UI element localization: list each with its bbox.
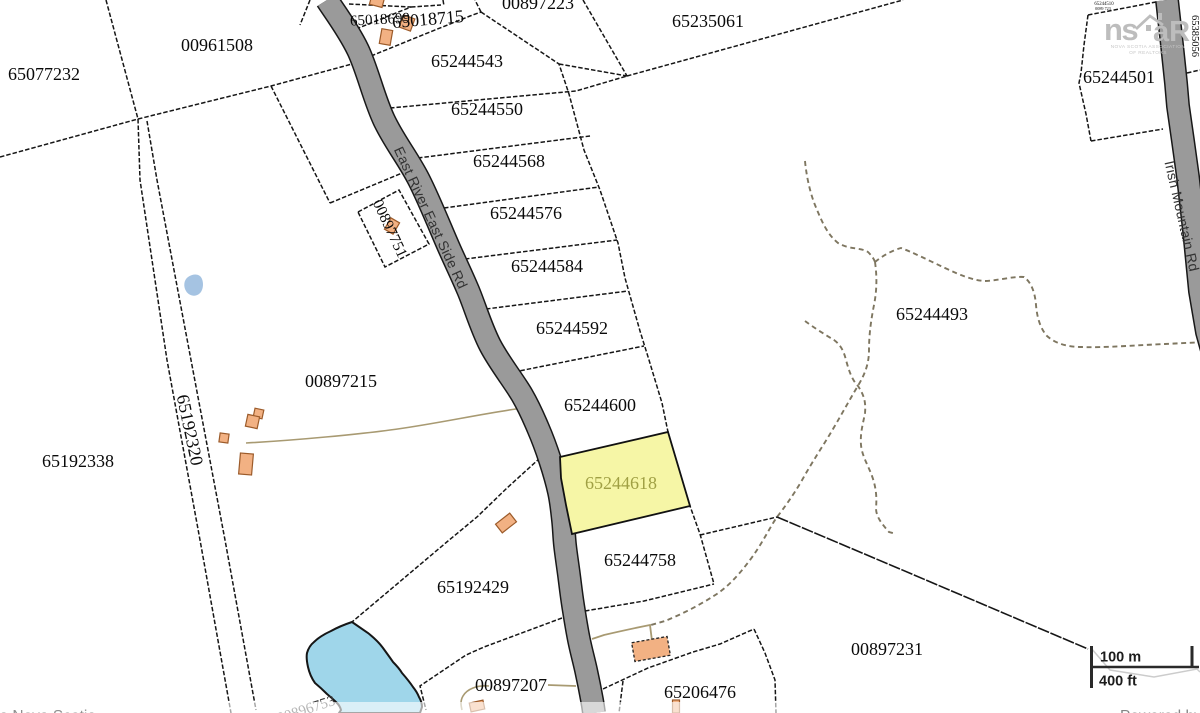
svg-text:Powered by: Powered by <box>1120 708 1200 713</box>
svg-text:00897215: 00897215 <box>305 371 377 391</box>
svg-text:65244584: 65244584 <box>511 256 583 276</box>
svg-text:65192338: 65192338 <box>42 451 114 471</box>
svg-text:NOVA SCOTIA ASSOCIATION: NOVA SCOTIA ASSOCIATION <box>1111 44 1186 50</box>
svg-text:65244543: 65244543 <box>431 51 503 71</box>
svg-text:65385056: 65385056 <box>1189 15 1200 57</box>
svg-text:65244501: 65244501 <box>1083 67 1155 87</box>
svg-text:65244758: 65244758 <box>604 550 676 570</box>
svg-text:100 m: 100 m <box>1100 650 1141 666</box>
svg-text:OF REALTORS: OF REALTORS <box>1129 50 1167 56</box>
svg-text:0089 723: 0089 723 <box>1095 6 1111 11</box>
svg-text:00897223: 00897223 <box>502 0 574 13</box>
svg-text:65244568: 65244568 <box>473 151 545 171</box>
svg-text:65244550: 65244550 <box>451 99 523 119</box>
svg-text:65244618: 65244618 <box>585 473 657 493</box>
svg-text:65077232: 65077232 <box>8 64 80 84</box>
svg-text:00897207: 00897207 <box>475 675 547 695</box>
svg-text:00961508: 00961508 <box>181 35 253 55</box>
svg-text:65206476: 65206476 <box>664 682 736 702</box>
svg-text:65244493: 65244493 <box>896 304 968 324</box>
svg-text:400 ft: 400 ft <box>1099 674 1137 690</box>
svg-text:ia Nova Scotia: ia Nova Scotia <box>0 708 96 713</box>
svg-text:ns: ns <box>1104 12 1137 47</box>
svg-text:00897231: 00897231 <box>851 639 923 659</box>
svg-text:65192429: 65192429 <box>437 577 509 597</box>
svg-text:65244592: 65244592 <box>536 318 608 338</box>
svg-text:65235061: 65235061 <box>672 11 744 31</box>
svg-text:65244576: 65244576 <box>490 203 562 223</box>
svg-text:65244600: 65244600 <box>564 395 636 415</box>
